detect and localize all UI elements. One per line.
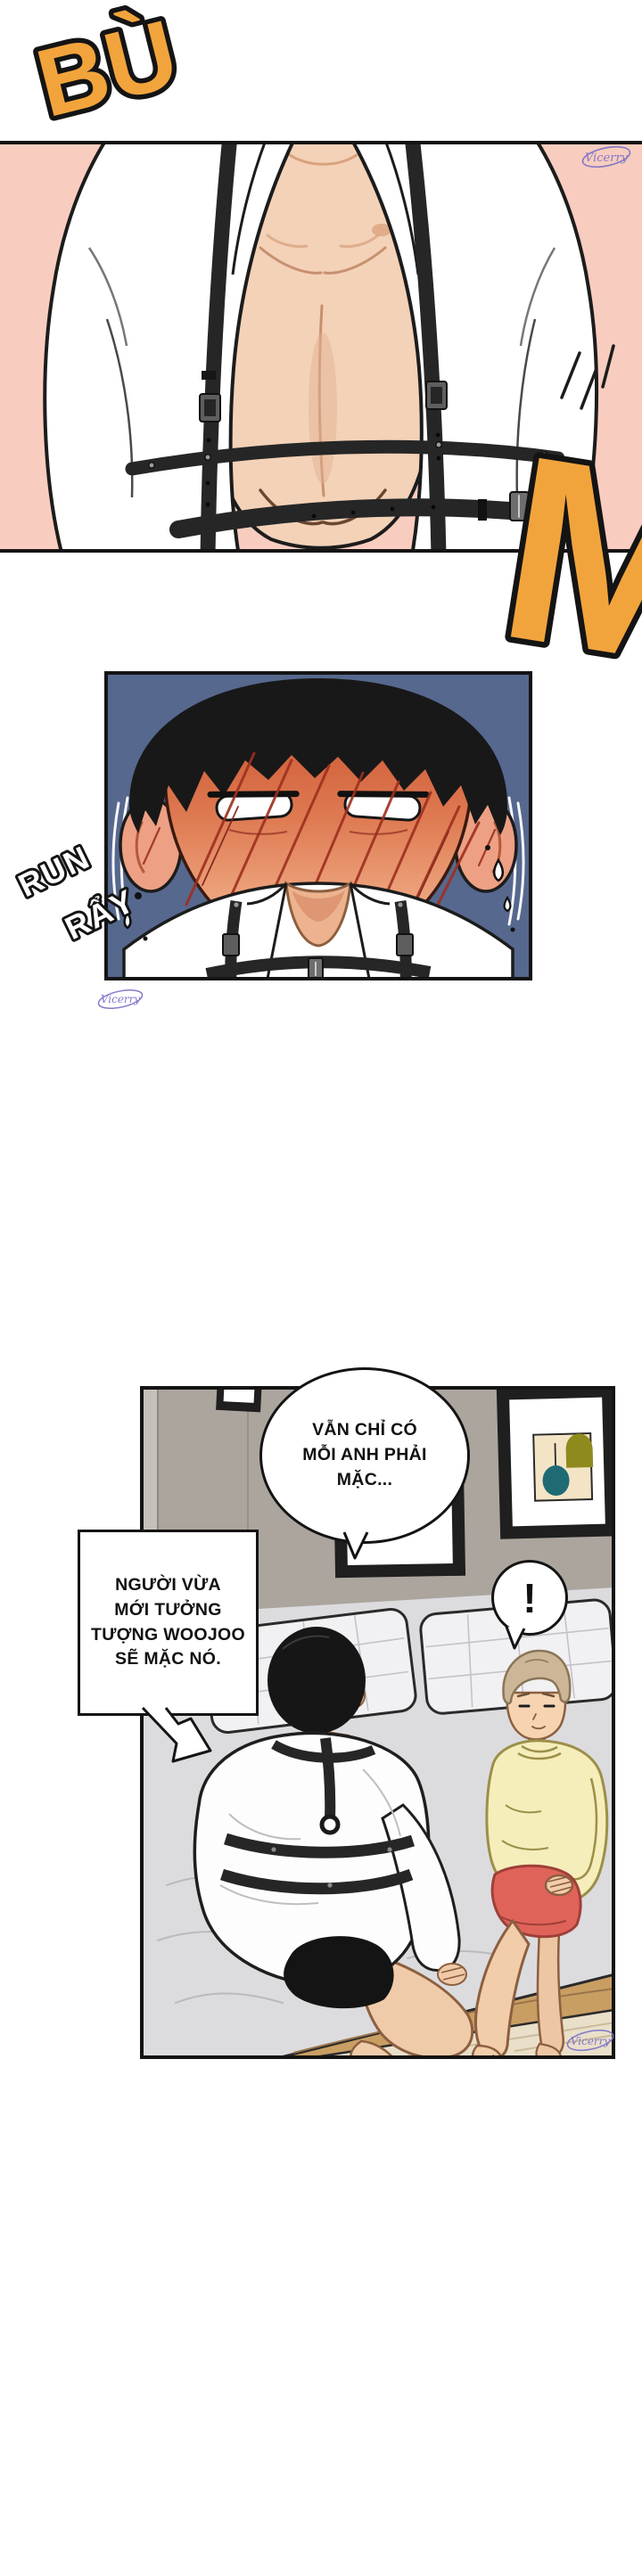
sfx-m: M [489,403,642,697]
speech-bubble-left: NGƯỜI VỪA MỚI TƯỞNG TƯỢNG WOOJOO SẼ MẶC … [78,1530,259,1716]
sfx-bu: BÙ [2,0,225,148]
sfx-bu-text: BÙ [27,0,188,137]
black-briefs [284,1936,393,2008]
speech-bubble-top-tail [341,1532,373,1564]
speech-line: MẶC... [337,1468,392,1493]
sfx-tremble-line2: RẨY [59,881,141,947]
watermark-text: Vicerry [571,2035,611,2047]
exclamation-bubble-tail [505,1627,528,1653]
speech-bubble-left-tail [132,1708,225,1765]
speech-line: NGƯỜI VỪA [115,1573,221,1598]
speech-line: MỖI ANH PHẢI [302,1443,426,1468]
watermark-top: Vicerry [580,144,633,176]
sfx-m-text: M [485,398,642,723]
watermark-middle: Vicerry [96,988,144,1016]
far-leg [538,1930,564,2056]
frame-right-artwork [497,1386,615,1539]
speech-line: VẪN CHỈ CÓ [312,1418,417,1443]
black-hair-back [267,1627,366,1734]
comic-page: BÙ [0,0,642,2576]
speech-line: MỚI TƯỞNG [114,1598,221,1623]
watermark-text: Vicerry [101,993,141,1005]
exclamation-bubble: ! [491,1560,568,1636]
watermark-bottom: Vicerry [565,2029,615,2058]
speech-line: SẼ MẶC NÓ. [115,1647,221,1672]
speech-line: TƯỢNG WOOJOO [91,1623,245,1648]
frame-top-left [216,1386,262,1412]
sfx-tremble-line1: RUN [12,838,95,904]
exclamation-text: ! [523,1578,536,1619]
watermark-text: Vicerry [585,152,629,165]
speech-bubble-top: VẪN CHỈ CÓ MỖI ANH PHẢI MẶC... [259,1367,470,1544]
